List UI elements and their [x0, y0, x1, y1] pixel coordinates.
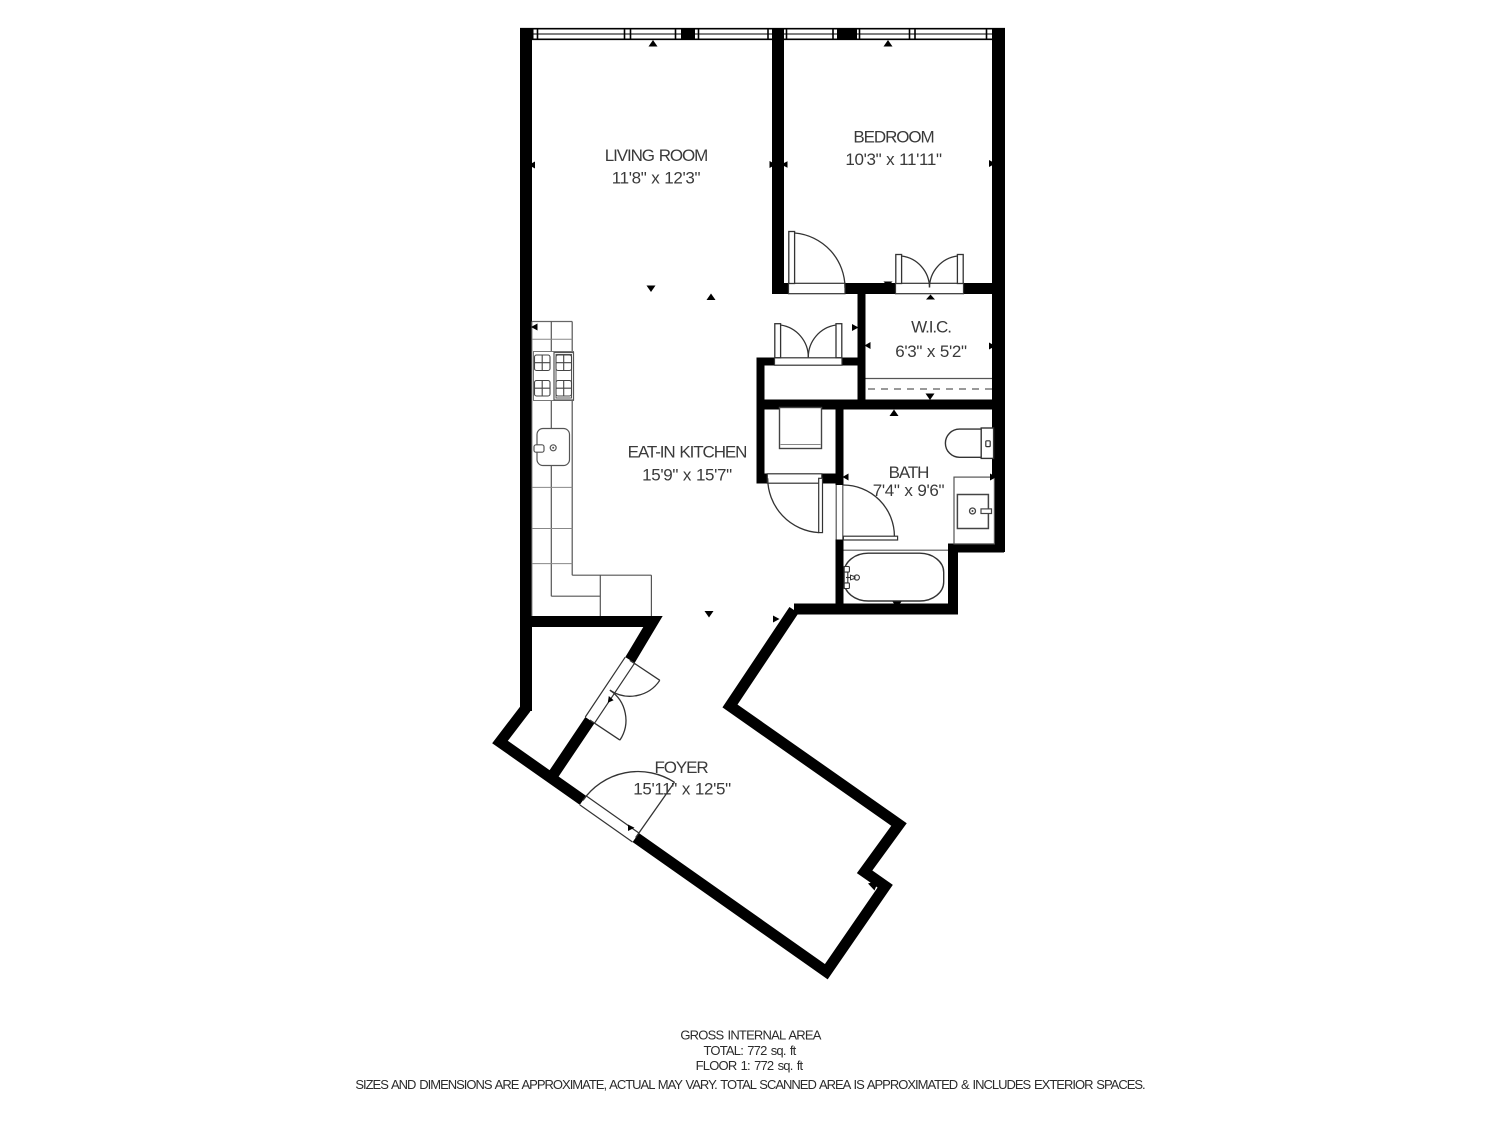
- svg-text:EAT-IN KITCHEN: EAT-IN KITCHEN: [628, 443, 747, 462]
- svg-text:FLOOR 1: 772 sq. ft: FLOOR 1: 772 sq. ft: [696, 1058, 804, 1073]
- svg-text:W.I.C.: W.I.C.: [911, 318, 951, 337]
- svg-text:10'3" x 11'11": 10'3" x 11'11": [845, 150, 942, 169]
- svg-text:SIZES AND DIMENSIONS ARE APPRO: SIZES AND DIMENSIONS ARE APPROXIMATE, AC…: [355, 1077, 1145, 1092]
- svg-text:BEDROOM: BEDROOM: [853, 128, 933, 147]
- svg-text:TOTAL: 772 sq. ft: TOTAL: 772 sq. ft: [704, 1043, 797, 1058]
- svg-text:11'8" x 12'3": 11'8" x 12'3": [612, 169, 701, 188]
- svg-text:15'9" x 15'7": 15'9" x 15'7": [642, 466, 732, 485]
- svg-text:7'4" x 9'6": 7'4" x 9'6": [873, 481, 945, 500]
- svg-text:GROSS INTERNAL AREA: GROSS INTERNAL AREA: [680, 1028, 821, 1043]
- svg-text:FOYER: FOYER: [654, 758, 708, 777]
- svg-text:6'3" x 5'2": 6'3" x 5'2": [895, 342, 967, 361]
- svg-text:LIVING ROOM: LIVING ROOM: [605, 146, 707, 165]
- svg-text:15'11" x 12'5": 15'11" x 12'5": [633, 780, 731, 799]
- svg-text:BATH: BATH: [889, 463, 929, 482]
